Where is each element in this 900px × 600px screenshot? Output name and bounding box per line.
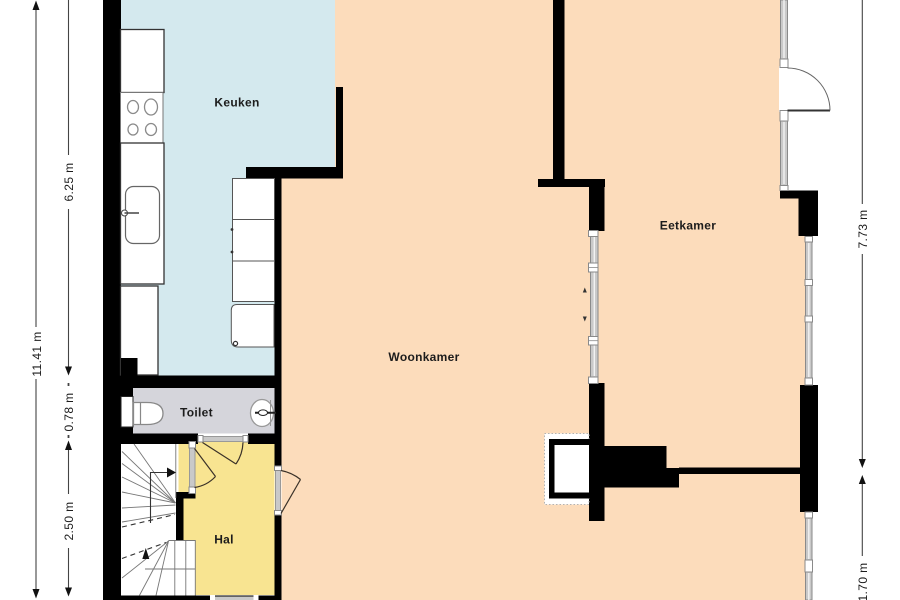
svg-text:Woonkamer: Woonkamer: [388, 350, 459, 364]
svg-text:7.73 m: 7.73 m: [856, 209, 870, 248]
svg-text:Keuken: Keuken: [214, 96, 259, 110]
svg-text:Toilet: Toilet: [180, 406, 213, 420]
svg-text:11.41 m: 11.41 m: [30, 331, 44, 376]
svg-text:0.78 m: 0.78 m: [62, 392, 76, 431]
svg-text:2.50 m: 2.50 m: [62, 501, 76, 540]
svg-text:Eetkamer: Eetkamer: [660, 219, 716, 233]
svg-text:6.25 m: 6.25 m: [62, 162, 76, 201]
svg-text:1.70 m: 1.70 m: [856, 562, 870, 600]
svg-text:Hal: Hal: [214, 533, 234, 547]
